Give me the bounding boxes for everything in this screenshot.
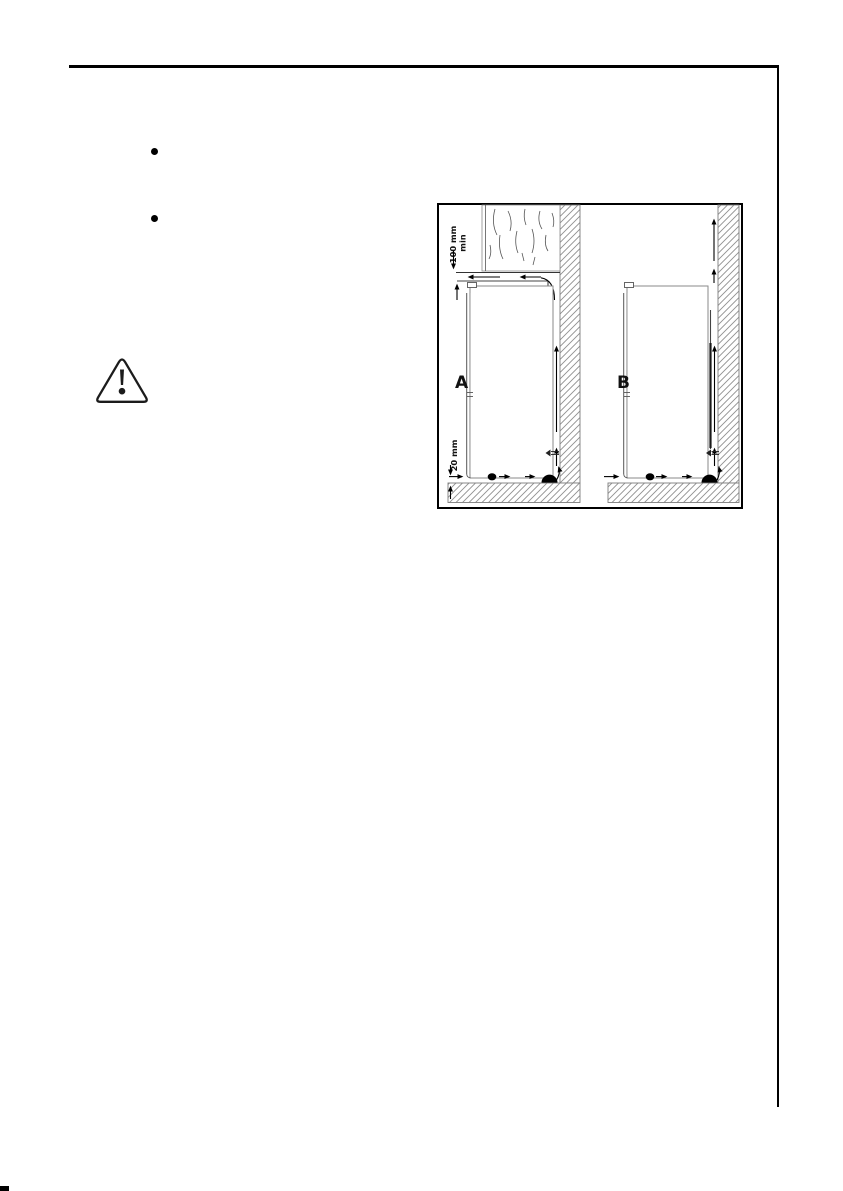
bullet-icon bbox=[151, 148, 158, 155]
wall-hatch bbox=[560, 205, 580, 483]
fridge-foot bbox=[488, 473, 497, 480]
bullet-icon bbox=[151, 215, 158, 222]
door-hinge bbox=[468, 283, 477, 288]
panel-b-label: B bbox=[617, 373, 630, 393]
warning-triangle-icon bbox=[94, 355, 150, 407]
page-corner-mark bbox=[0, 1186, 9, 1191]
floor-hatch bbox=[608, 483, 739, 503]
manual-page: 100 mm min bbox=[0, 0, 843, 1191]
fridge bbox=[624, 283, 708, 479]
door-hinge bbox=[625, 283, 634, 288]
fridge bbox=[467, 283, 553, 479]
header-rule bbox=[69, 65, 779, 68]
wall-hatch bbox=[718, 205, 739, 483]
dim-top-label-2: min bbox=[458, 234, 468, 251]
overhead-cabinet bbox=[482, 205, 560, 271]
installation-figure: 100 mm min bbox=[437, 203, 743, 509]
panel-a-label: A bbox=[455, 373, 469, 393]
exclamation-dot bbox=[119, 388, 126, 395]
fridge-foot bbox=[646, 473, 655, 480]
right-margin-rule bbox=[777, 65, 780, 1107]
floor-hatch bbox=[448, 483, 580, 503]
